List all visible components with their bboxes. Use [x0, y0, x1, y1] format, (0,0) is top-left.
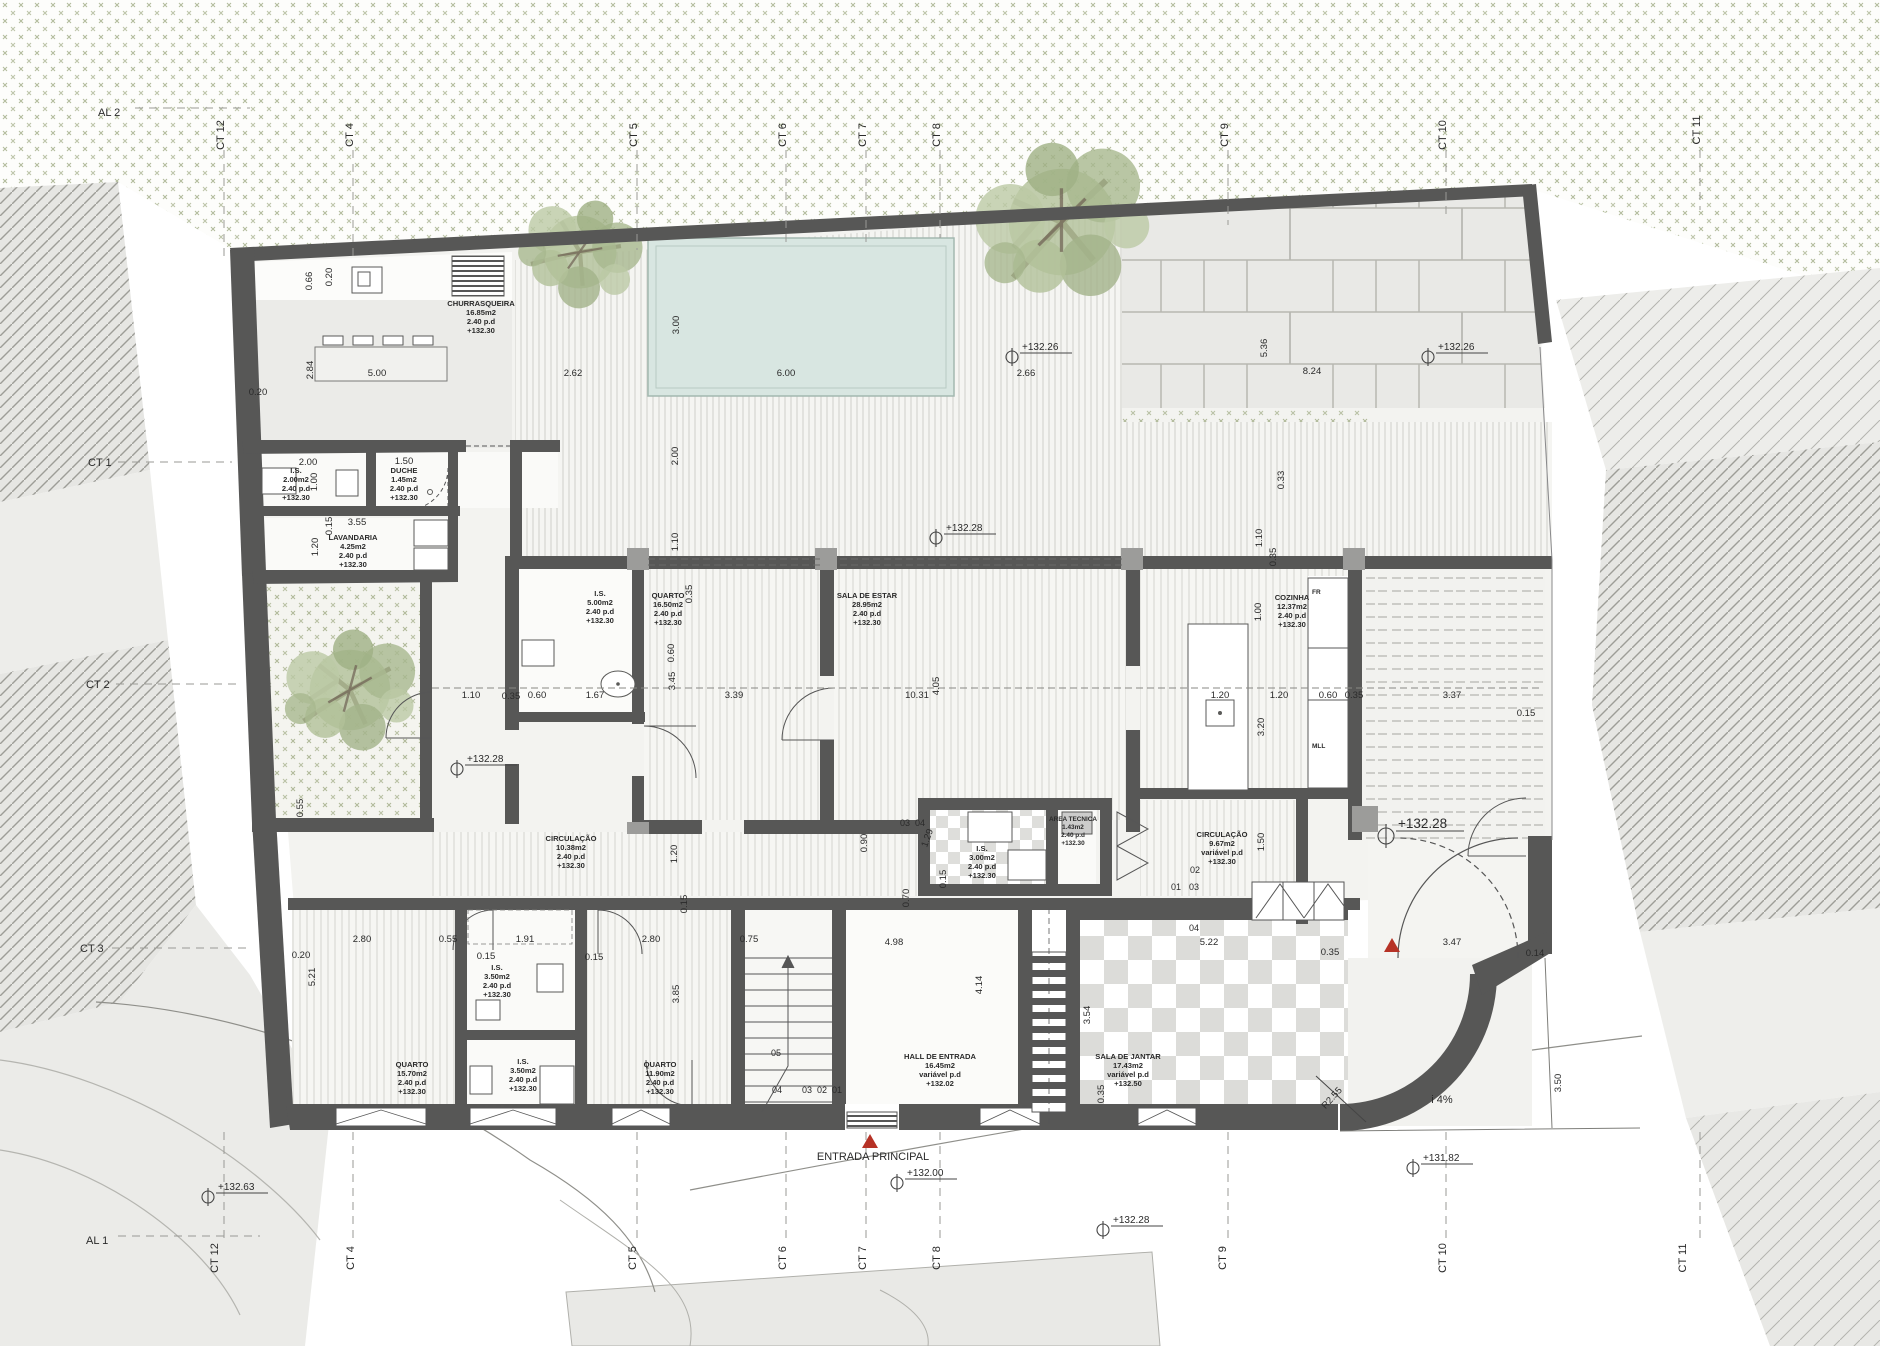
- room-name: HALL DE ENTRADA: [904, 1052, 977, 1061]
- room-name: LAVANDARIA: [328, 533, 378, 542]
- room-level: +132.30: [968, 871, 996, 880]
- grid-label: CT 7: [857, 1246, 869, 1270]
- appliance-label: MLL: [1312, 743, 1325, 750]
- dimension: 1.20: [1211, 690, 1230, 701]
- dimension: 0.14: [1526, 948, 1545, 959]
- grid-label: AL 1: [86, 1235, 108, 1247]
- room-area: 3.50m2: [484, 972, 510, 981]
- entrance-marker-triangle: [862, 1134, 878, 1148]
- dimension: 6.00: [777, 368, 796, 379]
- room-height: 2.40 p.d: [483, 981, 512, 990]
- dimension: 1.10: [670, 533, 681, 552]
- grid-label: CT 4: [344, 123, 356, 147]
- dimension: 0.55: [295, 799, 306, 818]
- floor-plan-canvas: AL 2 CT 12 CT 4 CT 5 CT 6 CT 7 CT 8 CT 9…: [0, 0, 1880, 1346]
- dimension: 0.35: [1268, 548, 1279, 567]
- room-name: CHURRASQUEIRA: [447, 299, 515, 308]
- room-label-quarto1190: QUARTO11.90m22.40 p.d+132.30: [644, 1060, 677, 1096]
- dimension: 0.15: [324, 517, 335, 536]
- dimension: 0.70: [901, 889, 912, 908]
- room-height: 2.40 p.d: [646, 1078, 675, 1087]
- room-level: +132.30: [398, 1087, 426, 1096]
- room-name: QUARTO: [644, 1060, 677, 1069]
- dimension: 3.55: [348, 517, 367, 528]
- room-height: 2.40 p.d: [339, 551, 368, 560]
- dimension: 3.37: [1443, 690, 1462, 701]
- elevation-value: +132.28: [1113, 1215, 1150, 1226]
- dimension: 0.60: [528, 690, 547, 701]
- elevation-value: +132.28: [1398, 816, 1447, 831]
- room-area: 3.50m2: [510, 1066, 536, 1075]
- room-height: variável p.d: [1107, 1070, 1149, 1079]
- step-number: 03: [900, 818, 910, 828]
- elevation-value: +132.28: [946, 523, 983, 534]
- dimension: 1.00: [1253, 603, 1264, 622]
- room-level: +132.30: [509, 1084, 537, 1093]
- step-number: 02: [817, 1085, 827, 1095]
- elevation-value: +132.28: [467, 754, 504, 765]
- dimension: 1.20: [1270, 690, 1289, 701]
- dimension: 2.80: [353, 934, 372, 945]
- room-height: 2.40 p.d: [390, 484, 419, 493]
- room-height: 2.40 p.d: [654, 609, 683, 618]
- room-level: +132.30: [853, 618, 881, 627]
- room-area: 9.67m2: [1209, 839, 1235, 848]
- step-number: 04: [1189, 923, 1199, 933]
- dimension: 5.36: [1259, 339, 1270, 358]
- dimension: 0.35: [502, 691, 521, 702]
- dimension: 0.55: [439, 934, 458, 945]
- room-level: +132.30: [339, 560, 367, 569]
- dimension: 0.35: [1096, 1085, 1107, 1104]
- dimension: 0.60: [666, 644, 677, 663]
- room-area: 1.45m2: [391, 475, 417, 484]
- floor-plan-page: AL 2 CT 12 CT 4 CT 5 CT 6 CT 7 CT 8 CT 9…: [0, 0, 1880, 1346]
- room-area: 16.50m2: [653, 600, 683, 609]
- grid-label: CT 7: [857, 123, 869, 147]
- dimension: 4.98: [885, 937, 904, 948]
- dimension: 0.15: [477, 951, 496, 962]
- grid-label: CT 8: [931, 1246, 943, 1270]
- elevation-value: +132.00: [907, 1168, 944, 1179]
- room-level: +132.30: [483, 990, 511, 999]
- dimension: 3.20: [1256, 718, 1267, 737]
- room-name: QUARTO: [396, 1060, 429, 1069]
- basement-stair: [1032, 908, 1066, 1128]
- fridge-label: FR: [1312, 589, 1321, 596]
- dimension: 4.14: [974, 976, 985, 995]
- dimension: 0.15: [585, 952, 604, 963]
- dimension: 3.00: [671, 316, 682, 335]
- slope-label: i 4%: [1431, 1094, 1453, 1106]
- room-level: +132.30: [646, 1087, 674, 1096]
- room-name: SALA DE JANTAR: [1095, 1052, 1161, 1061]
- grid-label: CT 6: [777, 123, 789, 147]
- grid-label: AL 2: [98, 107, 120, 119]
- room-label-cozinha: COZINHA12.37m22.40 p.d+132.30: [1275, 593, 1310, 629]
- step-number: 03: [802, 1085, 812, 1095]
- exterior-steps: [1252, 882, 1344, 920]
- grid-label: CT 9: [1217, 1246, 1229, 1270]
- dimension: 1.10: [462, 690, 481, 701]
- room-area: 15.70m2: [397, 1069, 427, 1078]
- grid-label: CT 12: [215, 120, 227, 150]
- dimension: 0.35: [1321, 947, 1340, 958]
- dimension: 3.85: [671, 985, 682, 1004]
- room-name: I.S.: [594, 589, 605, 598]
- dimension: 3.47: [1443, 937, 1462, 948]
- dimension: 3.45: [667, 672, 678, 691]
- grid-label: CT 10: [1437, 120, 1449, 150]
- room-height: 2.40 p.d: [853, 609, 882, 618]
- room-area: 5.00m2: [587, 598, 613, 607]
- dimension: 10.31: [905, 690, 929, 701]
- dimension: 1.10: [1254, 529, 1265, 548]
- room-height: 2.40 p.d: [282, 484, 311, 493]
- step-number: 05: [771, 1048, 781, 1058]
- main-entrance-label: ENTRADA PRINCIPAL: [817, 1151, 929, 1163]
- step-number: 04: [915, 818, 925, 828]
- room-height: 2.40 p.d: [968, 862, 997, 871]
- room-label-quarto1570: QUARTO15.70m22.40 p.d+132.30: [396, 1060, 429, 1096]
- elevation-value: +132.63: [218, 1182, 255, 1193]
- room-area: 17.43m2: [1113, 1061, 1143, 1070]
- dimension: 1.91: [516, 934, 535, 945]
- dimension: 0.35: [684, 585, 695, 604]
- dimension: 0.90: [859, 834, 870, 853]
- dimension: 0.15: [938, 870, 949, 889]
- dimension: 5.22: [1200, 937, 1219, 948]
- room-area: 16.85m2: [466, 308, 496, 317]
- room-level: +132.30: [390, 493, 418, 502]
- grid-label: CT 3: [80, 943, 104, 955]
- dimension: 0.15: [679, 895, 690, 914]
- grid-label: CT 5: [628, 123, 640, 147]
- room-level: +132.30: [282, 493, 310, 502]
- room-height: 2.40 p.d: [509, 1075, 538, 1084]
- room-area: 16.45m2: [925, 1061, 955, 1070]
- room-name: SALA DE ESTAR: [837, 591, 898, 600]
- step-number: 01: [832, 1085, 842, 1095]
- room-level: +132.30: [1061, 840, 1085, 847]
- grid-label: CT 12: [209, 1243, 221, 1273]
- room-height: 2.40 p.d: [398, 1078, 427, 1087]
- room-level: +132.30: [586, 616, 614, 625]
- dimension: 1.50: [1256, 833, 1267, 852]
- room-height: 2.40 p.d: [1278, 611, 1307, 620]
- room-name: AREA TECNICA: [1049, 816, 1097, 823]
- room-height: 2.40 p.d: [1061, 832, 1085, 839]
- room-area: 28.95m2: [852, 600, 882, 609]
- dimension: 2.62: [564, 368, 583, 379]
- dimension: 0.60: [1319, 690, 1338, 701]
- neighbour-terrain-right: [1556, 268, 1880, 1346]
- room-area: 11.90m2: [645, 1069, 675, 1078]
- room-name: COZINHA: [1275, 593, 1310, 602]
- dimension: 0.66: [304, 272, 315, 291]
- step-number: 03: [1189, 882, 1199, 892]
- grid-label: CT 1: [88, 457, 112, 469]
- room-height: variável p.d: [1201, 848, 1243, 857]
- room-level: +132.30: [1278, 620, 1306, 629]
- grid-label: CT 5: [627, 1246, 639, 1270]
- grid-label: CT 8: [931, 123, 943, 147]
- room-name: DUCHE: [390, 466, 417, 475]
- room-name: I.S.: [491, 963, 502, 972]
- swimming-pool: [648, 238, 954, 396]
- room-label-quarto16: QUARTO16.50m22.40 p.d+132.30: [652, 591, 685, 627]
- grid-label: CT 6: [777, 1246, 789, 1270]
- grid-label: CT 10: [1437, 1243, 1449, 1273]
- dimension: 3.50: [1553, 1074, 1564, 1093]
- dimension: 0.20: [249, 387, 268, 398]
- room-area: 3.00m2: [969, 853, 995, 862]
- room-level: +132.30: [1208, 857, 1236, 866]
- room-area: 1.43m2: [1062, 824, 1084, 831]
- grid-label: CT 11: [1677, 1244, 1689, 1273]
- dimension: 2.84: [305, 361, 316, 380]
- room-area: 4.25m2: [340, 542, 366, 551]
- room-area: 10.38m2: [556, 843, 586, 852]
- grid-label: CT 2: [86, 679, 110, 691]
- dimension: 0.35: [1345, 690, 1364, 701]
- room-level: +132.02: [926, 1079, 954, 1088]
- dimension: 5.21: [307, 968, 318, 987]
- step-number: 02: [1190, 865, 1200, 875]
- room-name: I.S.: [517, 1057, 528, 1066]
- room-height: variável p.d: [919, 1070, 961, 1079]
- room-height: 2.40 p.d: [467, 317, 496, 326]
- step-number: 01: [1171, 882, 1181, 892]
- dimension: 5.00: [368, 368, 387, 379]
- dimension: 3.39: [725, 690, 744, 701]
- dimension: 1.20: [310, 538, 321, 557]
- room-level: +132.50: [1114, 1079, 1142, 1088]
- dimension: 1.20: [669, 845, 680, 864]
- dimension: 2.80: [642, 934, 661, 945]
- room-name: CIRCULAÇÃO: [545, 834, 596, 843]
- dimension: 2.66: [1017, 368, 1036, 379]
- dimension: 1.50: [395, 456, 414, 467]
- dimension: 0.15: [1517, 708, 1536, 719]
- grid-label: CT 11: [1691, 116, 1703, 145]
- elevation-value: +132.26: [1438, 342, 1475, 353]
- room-area: 12.37m2: [1277, 602, 1307, 611]
- dimension: 0.33: [1276, 471, 1287, 490]
- room-name: I.S.: [976, 844, 987, 853]
- step-number: 04: [772, 1085, 782, 1095]
- room-level: +132.30: [654, 618, 682, 627]
- elevation-value: +131.82: [1423, 1153, 1460, 1164]
- dimension: 3.54: [1082, 1006, 1093, 1025]
- room-label-duche: DUCHE1.45m22.40 p.d+132.30: [390, 466, 419, 502]
- room-level: +132.30: [557, 861, 585, 870]
- dimension: 2.00: [299, 457, 318, 468]
- grid-label: CT 4: [345, 1246, 357, 1270]
- room-name: CIRCULAÇÃO: [1196, 830, 1247, 839]
- dimension: 1.00: [309, 473, 320, 492]
- room-height: 2.40 p.d: [586, 607, 615, 616]
- dimension: 4.05: [931, 677, 942, 696]
- dimension: 0.20: [324, 268, 335, 287]
- room-name: QUARTO: [652, 591, 685, 600]
- room-level: +132.30: [467, 326, 495, 335]
- dimension: 1.67: [586, 690, 605, 701]
- room-area: 2.00m2: [283, 475, 309, 484]
- dimension: 8.24: [1303, 366, 1322, 377]
- room-height: 2.40 p.d: [557, 852, 586, 861]
- elevation-value: +132.26: [1022, 342, 1059, 353]
- dimension: 0.20: [292, 950, 311, 961]
- dimension: 0.75: [740, 934, 759, 945]
- grid-label: CT 9: [1219, 123, 1231, 147]
- dimension: 2.00: [670, 447, 681, 466]
